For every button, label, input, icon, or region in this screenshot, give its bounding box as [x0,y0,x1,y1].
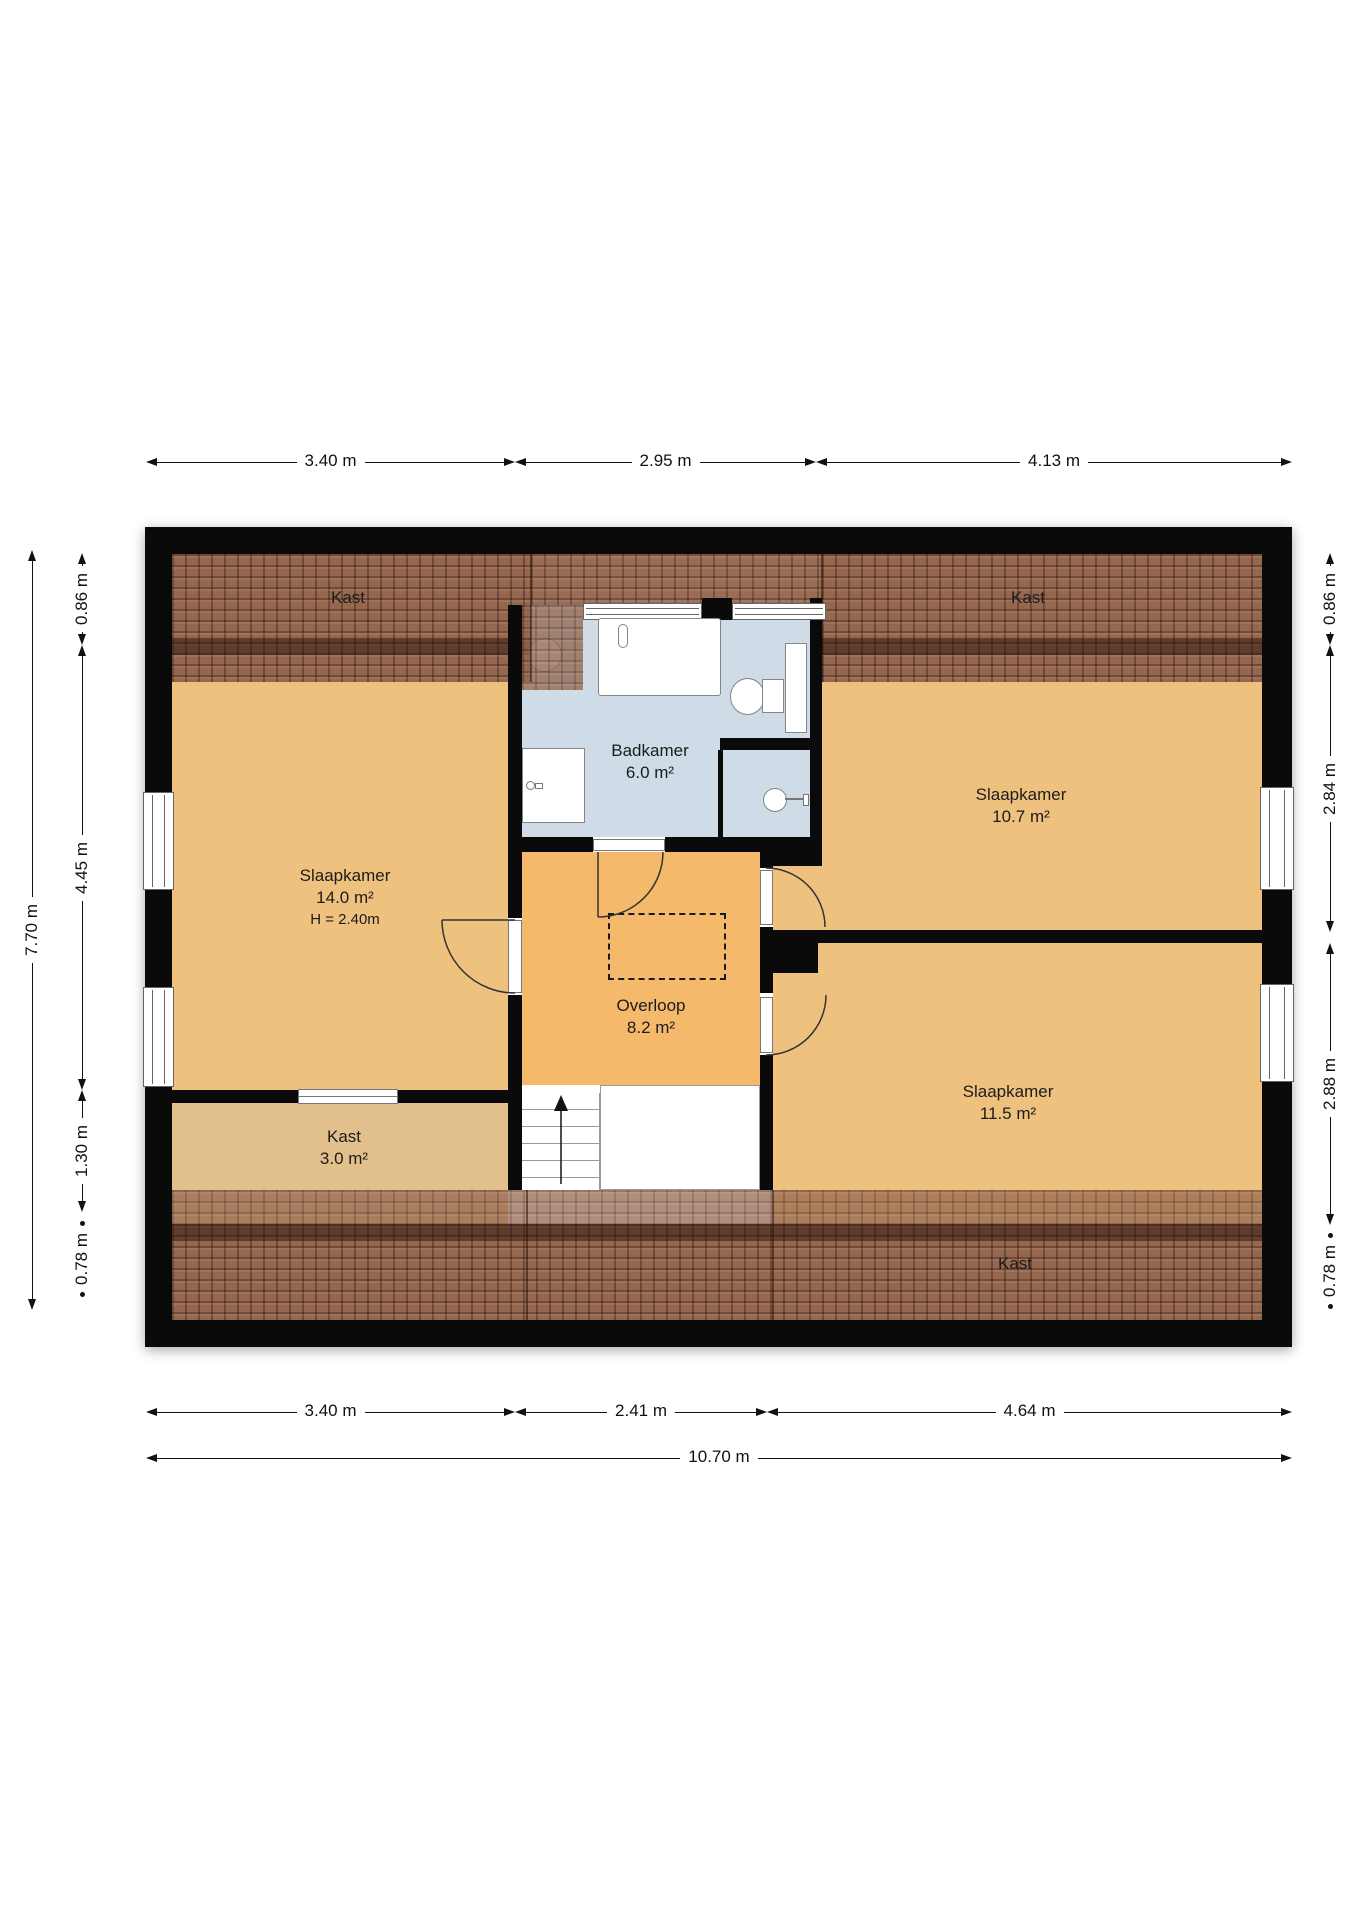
roof-edge-line [526,1190,528,1320]
roof-dormer [531,554,822,605]
roof-edge-line [530,554,532,682]
roof-ridge [172,1224,1262,1241]
wall [508,605,522,918]
skylight-dashed-outline [608,913,726,980]
dimension-left-3: 1.30 m [65,1090,99,1212]
dimension-left-1: 0.86 m [65,553,99,645]
door-leaf [593,839,665,851]
floor-bedroom-right-bottom [818,943,1262,973]
room-label-closet-top-right: Kast [1011,587,1045,609]
room-label-bedroom-right-top: Slaapkamer 10.7 m² [976,784,1067,828]
sink-tap-icon [785,798,805,800]
room-label-closet-bottom: Kast [998,1253,1032,1275]
door-leaf [760,870,773,925]
dimension-right-4: 0.78 m [1313,1233,1347,1310]
stairwell-void [600,1085,760,1190]
wall [760,927,773,993]
room-label-bedroom-left: Slaapkamer 14.0 m² H = 2.40m [300,865,391,931]
room-label-closet-top-left: Kast [331,587,365,609]
roof-top-right [822,554,1262,682]
dimension-top-1: 3.40 m [146,452,515,472]
wall [810,598,822,837]
door-leaf [760,997,773,1053]
dimension-left-2: 4.45 m [65,645,99,1090]
toilet-tank-icon [762,679,784,713]
wall [773,852,822,866]
roof-edge-line [772,1190,774,1320]
wall [508,995,522,1190]
roof-top-left [172,554,531,682]
dimension-bottom-total: 10.70 m [146,1448,1292,1468]
wall [760,852,773,868]
roof-ridge [822,638,1262,655]
dimension-right-2: 2.84 m [1313,645,1347,932]
room-label-closet-left: Kast 3.0 m² [320,1126,368,1170]
wall [773,943,818,973]
room-label-bathroom: Badkamer 6.0 m² [611,740,688,784]
dimension-top-2: 2.95 m [515,452,816,472]
wall [773,930,1262,943]
sink-icon [763,788,787,812]
washing-machine-icon [522,748,585,823]
sink-tap-icon [803,794,809,806]
floor-bedroom-right-top [773,866,822,932]
dormer-window [732,603,826,620]
sliding-door [298,1089,398,1104]
wall [508,837,593,852]
window [143,792,174,890]
dimension-bottom-2: 2.41 m [515,1402,767,1422]
floorplan-page: Kast Kast Badkamer 6.0 m² Slaapkamer 14.… [0,0,1358,1920]
stairs [522,1093,600,1190]
dimension-right-1: 0.86 m [1313,553,1347,645]
window [1260,984,1294,1082]
bathtub-icon [598,618,721,696]
window-pier [702,598,732,620]
dimension-right-3: 2.88 m [1313,943,1347,1225]
room-label-landing: Overloop 8.2 m² [617,995,686,1039]
roof-ridge [172,638,531,655]
roof-bottom [172,1224,1262,1320]
wall [760,1055,773,1190]
dimension-left-4: 0.78 m [65,1221,99,1310]
door-leaf [508,920,522,993]
dimension-top-3: 4.13 m [816,452,1292,472]
wall-thin [718,750,723,837]
dimension-left-total: 7.70 m [15,550,49,1310]
bathroom-door-panel [785,643,807,733]
dimension-bottom-1: 3.40 m [146,1402,515,1422]
window [143,987,174,1087]
dimension-bottom-3: 4.64 m [767,1402,1292,1422]
wall [665,837,822,852]
room-label-bedroom-right-bottom: Slaapkamer 11.5 m² [963,1081,1054,1125]
faucet-icon [618,624,628,648]
toilet-icon [730,678,765,715]
wall [720,738,812,750]
window [1260,787,1294,890]
roof-bottom-upper [172,1190,1262,1224]
